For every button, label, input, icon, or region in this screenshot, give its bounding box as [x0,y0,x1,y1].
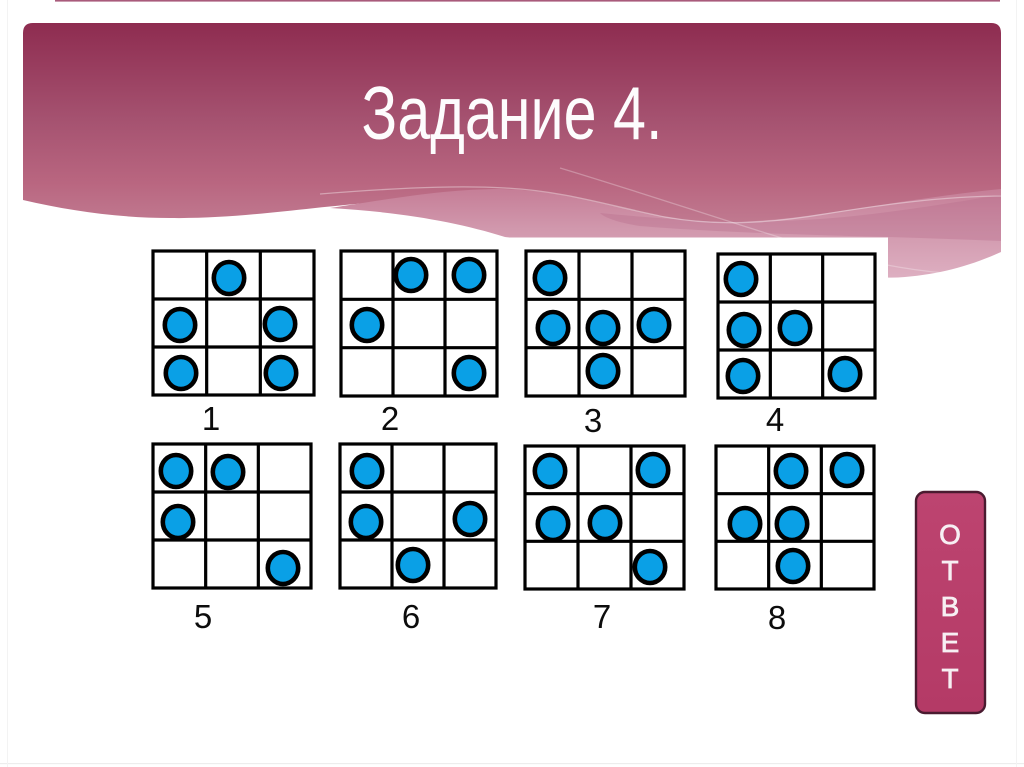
svg-text:Е: Е [941,627,960,658]
svg-text:О: О [939,519,961,550]
svg-text:2: 2 [381,400,399,437]
svg-text:Т: Т [941,663,958,694]
svg-text:3: 3 [584,402,602,439]
svg-text:5: 5 [194,598,212,635]
svg-text:Задание 4.: Задание 4. [362,72,663,155]
svg-text:4: 4 [766,401,784,438]
svg-text:6: 6 [402,598,420,635]
svg-text:В: В [941,591,960,622]
svg-text:Т: Т [941,555,958,586]
svg-text:7: 7 [593,598,611,635]
svg-text:1: 1 [202,400,220,437]
svg-text:8: 8 [768,599,786,636]
